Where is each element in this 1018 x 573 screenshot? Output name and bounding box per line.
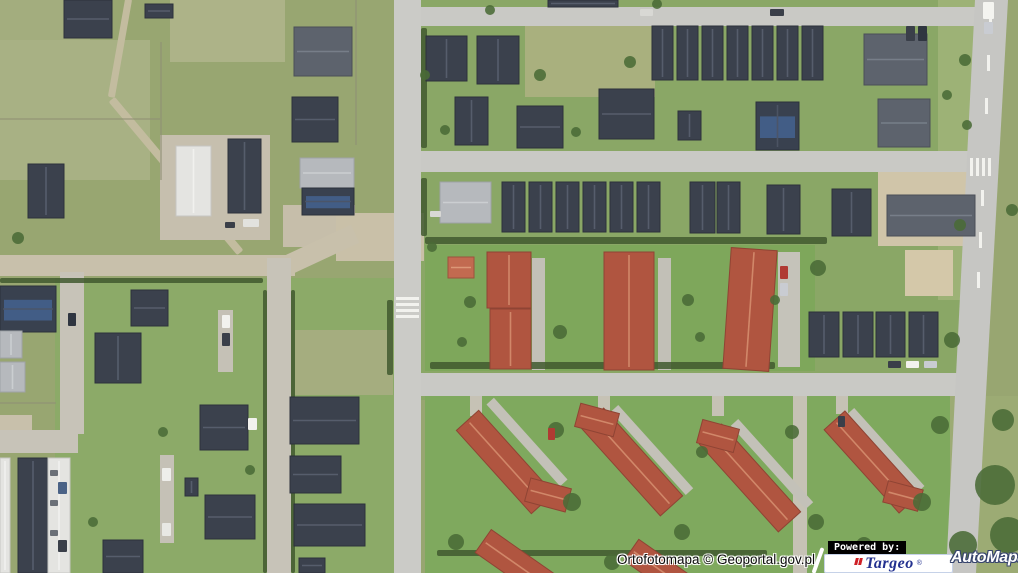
- car: [770, 9, 784, 16]
- solar-panels: [4, 300, 52, 321]
- automapa-wordmark: AutoMapa: [951, 549, 1018, 566]
- road: [421, 151, 970, 172]
- building: [723, 248, 777, 372]
- automapa-logo[interactable]: AutoMapa®: [951, 549, 1018, 571]
- road: [421, 373, 962, 396]
- building: [809, 312, 839, 357]
- tree: [913, 493, 931, 511]
- car: [888, 361, 901, 368]
- car: [983, 2, 994, 19]
- car: [58, 540, 67, 552]
- building: [529, 182, 552, 232]
- road-marking: [396, 315, 419, 318]
- tree: [440, 125, 450, 135]
- car: [68, 313, 76, 326]
- car: [924, 361, 937, 368]
- building: [294, 27, 352, 76]
- building: [302, 188, 354, 215]
- paved-area: [532, 258, 545, 370]
- tree: [942, 90, 952, 100]
- tree: [954, 219, 966, 231]
- building: [599, 89, 654, 139]
- building: [727, 26, 748, 80]
- building: [477, 36, 519, 84]
- targeo-wordmark: Targeo: [865, 554, 914, 573]
- car: [640, 9, 653, 16]
- tree: [245, 465, 255, 475]
- building: [205, 495, 255, 539]
- building: [455, 97, 488, 145]
- building: [690, 182, 715, 233]
- car: [225, 222, 235, 228]
- paved-area: [905, 250, 953, 296]
- building: [678, 111, 701, 140]
- road: [0, 430, 78, 453]
- tree: [12, 232, 24, 244]
- building: [752, 26, 773, 80]
- car: [222, 333, 230, 346]
- building: [0, 286, 56, 332]
- building: [717, 182, 740, 233]
- building: [864, 34, 927, 85]
- building: [294, 504, 365, 546]
- building: [300, 158, 354, 188]
- road: [267, 258, 291, 573]
- powered-by-label: Powered by:: [828, 541, 906, 554]
- building: [556, 182, 579, 232]
- building: [299, 558, 325, 573]
- grass-zone: [170, 0, 285, 62]
- building: [18, 458, 48, 573]
- car: [50, 530, 58, 536]
- building: [176, 146, 211, 216]
- tree: [571, 127, 581, 137]
- hedge: [0, 278, 263, 283]
- tree: [485, 5, 495, 15]
- tree: [457, 337, 467, 347]
- building: [637, 182, 660, 232]
- building: [290, 397, 359, 444]
- car: [58, 482, 67, 494]
- building: [610, 182, 633, 232]
- building: [756, 102, 799, 150]
- hedge: [421, 178, 427, 236]
- paved-area: [712, 396, 724, 416]
- car: [906, 361, 919, 368]
- targeo-glyph-icon: [855, 558, 862, 565]
- building: [145, 4, 173, 18]
- grass-zone: [295, 330, 393, 395]
- building: [677, 26, 698, 80]
- grass-zone: [0, 40, 150, 180]
- tree: [785, 425, 799, 439]
- tree: [695, 332, 705, 342]
- tree: [534, 69, 546, 81]
- road-marking: [396, 297, 419, 300]
- tree: [944, 332, 960, 348]
- tree: [962, 120, 972, 130]
- building: [583, 182, 606, 232]
- building: [200, 405, 248, 450]
- road-marking: [982, 158, 985, 176]
- tree: [553, 325, 567, 339]
- building: [28, 164, 64, 218]
- building: [0, 331, 22, 358]
- map-viewport[interactable]: Ortofotomapa © Geoportal.gov.pl Powered …: [0, 0, 1018, 573]
- car: [50, 500, 58, 506]
- tree: [975, 465, 1015, 505]
- tree: [464, 296, 476, 308]
- road-marking: [979, 232, 982, 248]
- tree: [808, 514, 824, 530]
- tree: [88, 517, 98, 527]
- car: [162, 523, 171, 536]
- building: [909, 312, 938, 357]
- car: [780, 266, 788, 279]
- road-marking: [985, 98, 988, 114]
- building: [64, 0, 112, 38]
- building: [502, 182, 525, 232]
- building: [517, 106, 563, 148]
- building: [702, 26, 723, 80]
- tree: [770, 295, 780, 305]
- car: [906, 26, 915, 41]
- tree: [158, 427, 168, 437]
- tree: [420, 70, 430, 80]
- fence: [0, 402, 56, 404]
- building: [228, 139, 261, 213]
- building: [95, 333, 141, 383]
- tree: [992, 409, 1014, 431]
- car: [243, 219, 259, 227]
- fence: [160, 42, 162, 180]
- targeo-logo[interactable]: Targeo ®: [824, 554, 953, 573]
- tree: [931, 416, 949, 434]
- car: [222, 315, 230, 328]
- building: [487, 252, 531, 308]
- car: [50, 470, 58, 476]
- building: [440, 182, 491, 223]
- building: [292, 97, 338, 142]
- tree: [1006, 204, 1018, 216]
- building: [0, 458, 10, 573]
- road-marking: [977, 272, 980, 288]
- building: [185, 478, 198, 496]
- building: [448, 257, 474, 278]
- car: [548, 428, 555, 440]
- road-marking: [988, 158, 991, 176]
- hedge: [425, 237, 827, 244]
- building: [802, 26, 823, 80]
- tree: [624, 56, 636, 68]
- fence: [0, 118, 160, 120]
- car: [780, 283, 788, 296]
- car: [430, 211, 441, 217]
- road-marking: [987, 55, 990, 71]
- tree: [448, 534, 464, 550]
- tree: [674, 524, 690, 540]
- building: [548, 0, 618, 7]
- tree: [682, 294, 694, 306]
- building: [604, 252, 654, 370]
- road-marking: [396, 309, 419, 312]
- building: [876, 312, 905, 357]
- hedge: [387, 300, 393, 375]
- car: [918, 26, 927, 41]
- car: [984, 22, 993, 34]
- car: [838, 416, 845, 427]
- hedge: [263, 290, 267, 573]
- road-marking: [970, 158, 973, 176]
- building: [777, 26, 798, 80]
- car: [162, 468, 171, 481]
- paved-area: [836, 396, 848, 414]
- tree: [696, 446, 708, 458]
- building: [652, 26, 673, 80]
- building: [832, 189, 871, 236]
- paved-area: [658, 258, 671, 370]
- road: [0, 255, 295, 276]
- building: [878, 99, 930, 147]
- tree: [959, 54, 971, 66]
- map-attribution: Ortofotomapa © Geoportal.gov.pl: [617, 552, 815, 567]
- building: [290, 456, 341, 493]
- tree: [427, 242, 437, 252]
- road: [421, 7, 975, 26]
- tree: [563, 493, 581, 511]
- road-marking: [396, 303, 419, 306]
- building: [131, 290, 168, 326]
- road-marking: [981, 190, 984, 206]
- building: [767, 185, 800, 234]
- building: [0, 362, 25, 392]
- aerial-imagery[interactable]: [0, 0, 1018, 573]
- tree: [810, 260, 826, 276]
- building: [490, 309, 531, 369]
- car: [248, 418, 257, 430]
- building: [843, 312, 873, 357]
- road: [394, 0, 421, 573]
- road-marking: [976, 158, 979, 176]
- building: [103, 540, 143, 573]
- fence: [355, 0, 357, 145]
- road: [60, 272, 84, 434]
- building: [426, 36, 467, 81]
